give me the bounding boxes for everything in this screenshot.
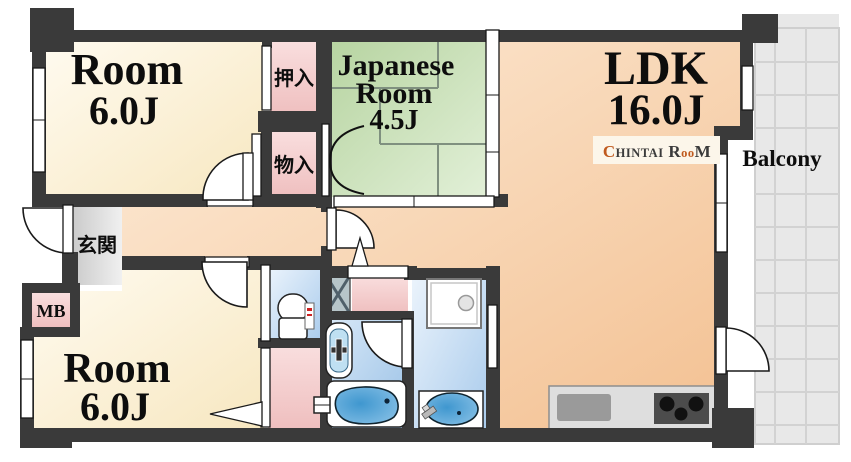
toilet-tank-icon — [279, 318, 307, 339]
balcony-door-leaf — [716, 327, 726, 374]
bathtub-icon — [335, 387, 398, 424]
room-top-door-leaf — [243, 153, 253, 200]
kitchen-counter — [549, 386, 718, 429]
balcony-deck — [755, 28, 839, 444]
bathroom-door-leaf — [402, 319, 412, 368]
hall-ldk-door-leaf — [327, 208, 336, 250]
oshiire-label: 押入 — [274, 66, 314, 90]
genkan-label: 玄関 — [77, 233, 117, 257]
ldk-size: 16.0J — [608, 87, 705, 134]
wall-segment — [320, 311, 412, 320]
bathtub-drain — [384, 398, 389, 403]
fold-door-track — [322, 124, 329, 196]
room-top-name: Room — [71, 45, 183, 94]
wall-segment — [32, 194, 208, 207]
window-icon — [742, 66, 753, 110]
sliding-partition-icon — [486, 30, 499, 197]
entrance-door-leaf — [63, 205, 73, 253]
kitchen-sink — [557, 394, 611, 421]
wall-segment — [32, 30, 752, 42]
burner-icon — [689, 397, 704, 412]
toilet-sliding-door-icon — [261, 265, 270, 341]
floorplan-svg: CHINTAI RooM Room 6.0J 押入 物入 Japanese Ro… — [0, 0, 851, 462]
linen-closet-floor — [352, 276, 408, 313]
burner-icon — [675, 408, 688, 421]
mb-label: MB — [37, 301, 66, 321]
balcony-label: Balcony — [742, 146, 822, 171]
wall-segment — [258, 111, 320, 132]
washroom-sliding-door-icon — [488, 305, 497, 368]
closet-bottom-floor — [268, 346, 322, 428]
wall-segment — [20, 428, 746, 442]
toilet-panel-led — [307, 308, 312, 311]
washer-drain-icon — [459, 296, 474, 311]
room-bottom-size: 6.0J — [80, 384, 150, 429]
wall-segment — [742, 14, 778, 43]
entrance-door-swing-icon — [23, 208, 68, 253]
room-top-size: 6.0J — [89, 88, 159, 133]
burner-icon — [660, 397, 675, 412]
wall-segment — [20, 428, 72, 448]
wall-segment — [122, 256, 205, 270]
washbasin-drain — [457, 411, 461, 415]
japanese-room-size: 4.5J — [370, 105, 419, 136]
washroom-entry-bar — [348, 266, 408, 278]
floorplan-page: CHINTAI RooM Room 6.0J 押入 物入 Japanese Ro… — [0, 0, 851, 462]
chintai-room-logo: CHINTAI RooM — [593, 136, 720, 164]
monoire-label: 物入 — [274, 153, 314, 177]
oshiire-fusuma-icon — [262, 46, 271, 110]
toilet-panel-led — [307, 314, 312, 316]
mixer-cross-icon — [336, 339, 342, 361]
wall-segment — [261, 130, 272, 198]
balcony-area — [755, 14, 839, 444]
